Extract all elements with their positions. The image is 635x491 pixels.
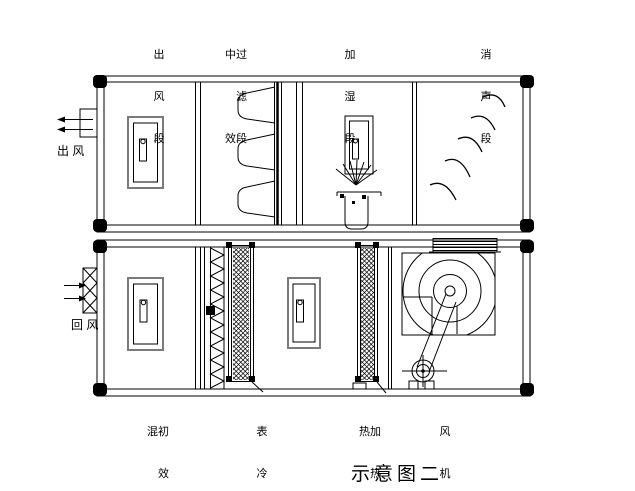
supply-outlet-duct [57, 109, 97, 137]
label-line: 效段 [217, 132, 255, 146]
cooling-section-damper-icon [288, 278, 320, 348]
cooling-coil-icon [226, 242, 263, 392]
label-line: 中过 [217, 48, 255, 62]
label-line: 混初 [139, 425, 177, 439]
label-line: 出 [145, 48, 173, 62]
label-line: 加 [336, 48, 364, 62]
label-supply-air: 出 风 [57, 144, 84, 158]
label-mixing-primary-filter-section: 混初 效 合段 [139, 397, 177, 491]
primary-filter-icon [206, 247, 224, 389]
ahu-schematic-diagram: 出 风 段 中过 滤 效段 加 湿 段 消 声 段 混初 效 合段 表 冷 段 … [0, 0, 635, 491]
label-line: 表 [248, 425, 276, 439]
label-return-air: 回 风 [71, 318, 98, 332]
return-inlet-louver [64, 268, 97, 313]
label-line: 消 [472, 48, 500, 62]
fan-icon [402, 238, 501, 389]
label-outlet-section: 出 风 段 [145, 20, 173, 160]
label-silencer-section: 消 声 段 [472, 20, 500, 160]
heating-coil-icon [353, 242, 386, 393]
label-line: 风 [431, 425, 459, 439]
label-line: 段 [472, 132, 500, 146]
label-line: 滤 [217, 90, 255, 104]
label-humidifier-section: 加 湿 段 [336, 20, 364, 160]
label-line: 段 [336, 132, 364, 146]
label-line: 热加 [351, 425, 389, 439]
label-line: 风 [145, 90, 173, 104]
fan-motor [402, 355, 447, 389]
label-line: 湿 [336, 90, 364, 104]
mixing-damper-icon [128, 278, 163, 350]
ahu-line-drawing [0, 0, 635, 491]
label-medium-filter-section: 中过 滤 效段 [217, 20, 255, 160]
label-line: 声 [472, 90, 500, 104]
label-line: 效 [139, 467, 177, 481]
label-cooling-coil-section: 表 冷 段 [248, 397, 276, 491]
label-line: 冷 [248, 467, 276, 481]
caption: 示意图二 [351, 459, 443, 486]
label-line: 段 [145, 132, 173, 146]
